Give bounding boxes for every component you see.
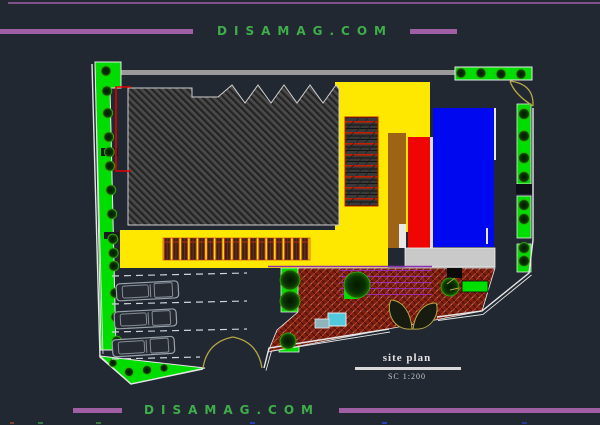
tree-icon [280,291,300,311]
screen-edge-artifact [10,422,14,424]
cad-canvas: DISAMAG.COM [0,0,600,425]
gate-swing-left [203,337,233,368]
tree-icon [519,256,530,267]
tree-icon [519,109,530,120]
tree-icon [456,68,466,78]
tree-icon [104,147,114,157]
tree-icon [104,132,114,142]
tree-icon [496,69,506,79]
tree-icon [441,278,459,296]
tree-icon [101,66,111,76]
kiosk-block [447,268,462,278]
planter-bar [462,281,488,292]
car-icon [112,336,175,357]
screen-edge-artifact [96,422,101,424]
tree-icon [516,69,526,79]
road-strip [118,70,458,75]
car-icon [114,309,177,329]
blue-block-tick [486,228,488,244]
tree-icon [476,68,486,78]
building-hatched-hall [128,85,339,225]
drawing-scale: SC 1:200 [347,372,467,381]
drawing-title: site plan [347,352,467,364]
screen-edge-artifact [382,422,387,424]
tree-icon [106,185,116,195]
parking-line [112,301,247,304]
ramp-column [399,224,406,248]
parking-line [112,357,200,359]
tree-icon [280,333,296,349]
screen-edge-artifact [522,422,527,424]
parking-line [112,273,247,276]
tree-icon [519,172,530,183]
watermark-bottom: DISAMAG.COM [87,403,377,417]
car-icon [116,281,179,301]
pool [328,313,346,326]
screen-edge-artifact [38,422,43,424]
blue-block [433,108,494,247]
blue-block-edge [494,108,496,160]
tree-icon [105,161,115,171]
tree-icon [103,108,113,118]
title-underline [355,367,461,370]
parked-cars [112,281,179,357]
tree-icon [109,359,117,367]
white-divider [430,137,433,248]
tree-icon [143,366,152,375]
gate-top-right [510,81,533,106]
tree-icon [519,200,530,211]
tree-icon [280,270,300,290]
parking-line [112,329,247,332]
bottom-divider-right [339,408,600,413]
screen-edge-artifact [250,422,255,424]
concrete-slab [405,248,495,267]
tree-icon [519,243,530,254]
lawn-gap [516,184,532,194]
site-plan-drawing [0,0,600,425]
tree-icon [519,131,530,142]
red-strip [408,137,430,248]
colonnade-ticks [163,238,310,260]
pool-step [315,319,329,328]
tree-icon [109,261,119,271]
tree-icon [519,153,530,164]
gate-swing-right [233,337,262,368]
tree-icon [102,86,112,96]
stair-block [345,117,378,206]
tree-icon [344,272,370,298]
tree-icon [160,364,168,372]
tree-icon [108,248,118,258]
tree-icon [107,209,117,219]
tree-icon [519,214,530,225]
tree-icon [108,234,118,244]
tree-icon [125,368,134,377]
